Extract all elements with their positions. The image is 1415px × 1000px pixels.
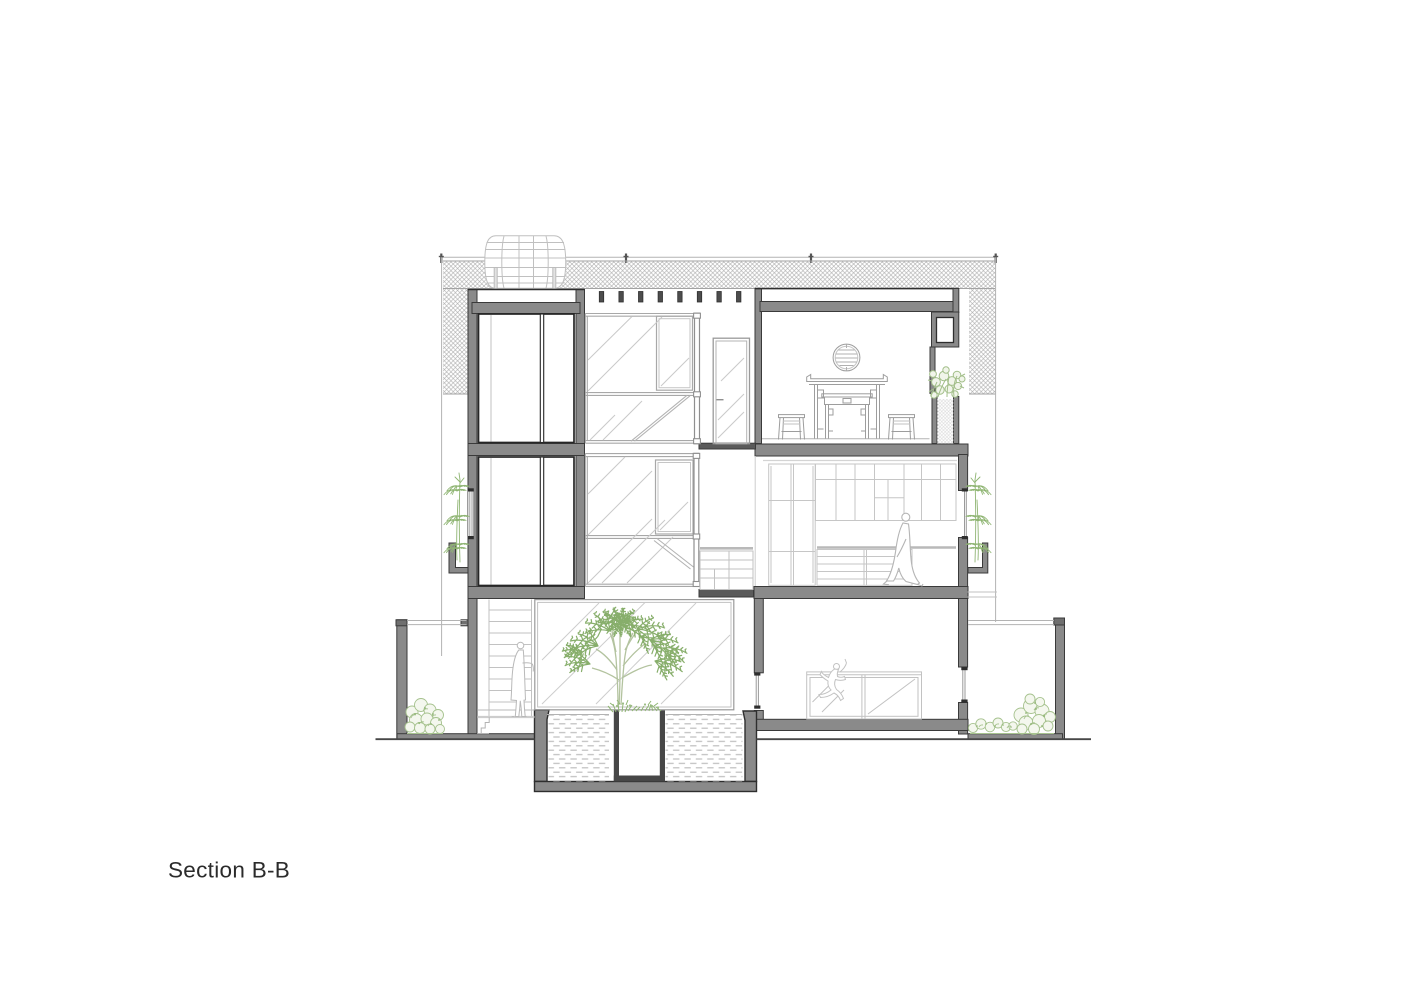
svg-text:Section B-B: Section B-B (168, 858, 290, 883)
